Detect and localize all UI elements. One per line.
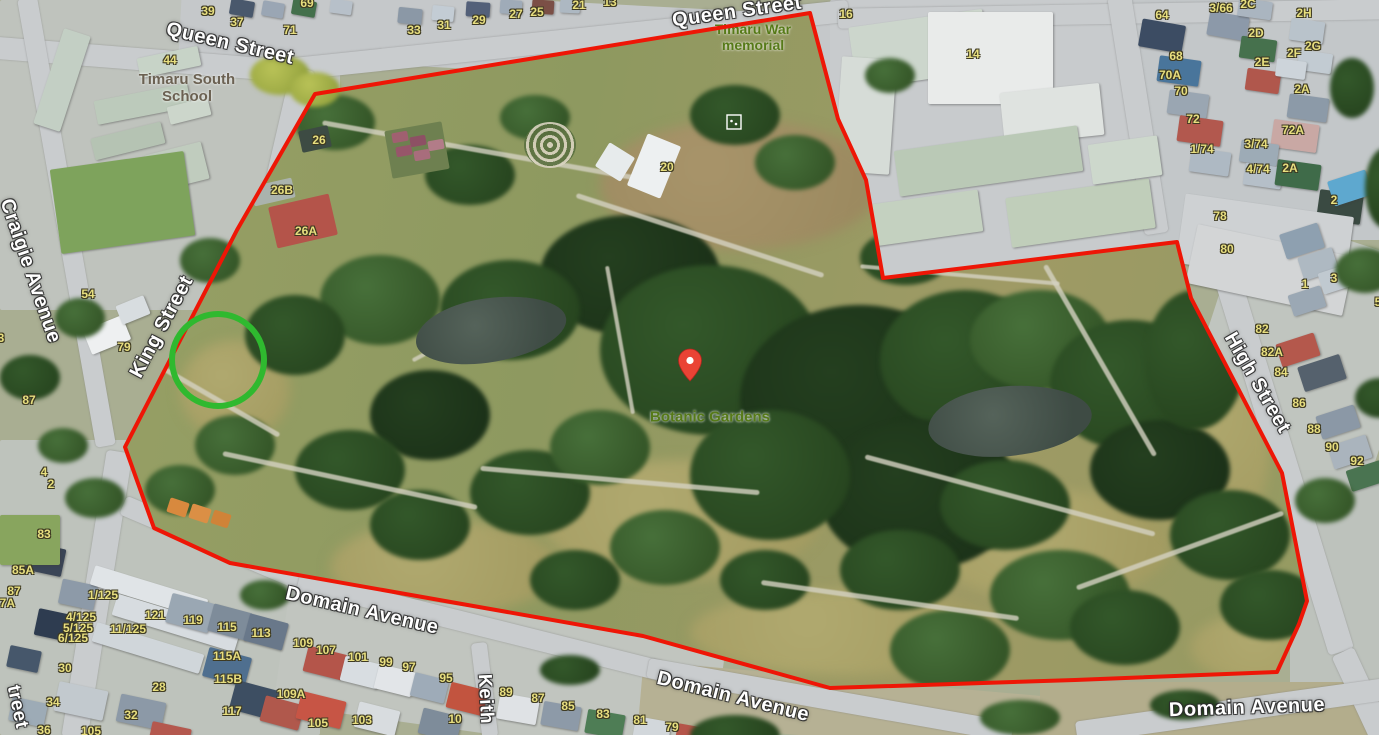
- gardens-boundary-outline: [125, 13, 1307, 688]
- annotation-overlay: [0, 0, 1379, 735]
- satellite-map-canvas[interactable]: Queen StreetQueen StreetCraigie AvenueKi…: [0, 0, 1379, 735]
- pin-body[interactable]: [679, 349, 702, 381]
- location-pin-icon[interactable]: [679, 349, 702, 381]
- war-memorial-marker: [727, 115, 741, 129]
- war-memorial-dot: [735, 123, 738, 126]
- highlight-circle: [172, 314, 264, 406]
- war-memorial-dot: [730, 120, 733, 123]
- pin-center-dot: [686, 357, 693, 364]
